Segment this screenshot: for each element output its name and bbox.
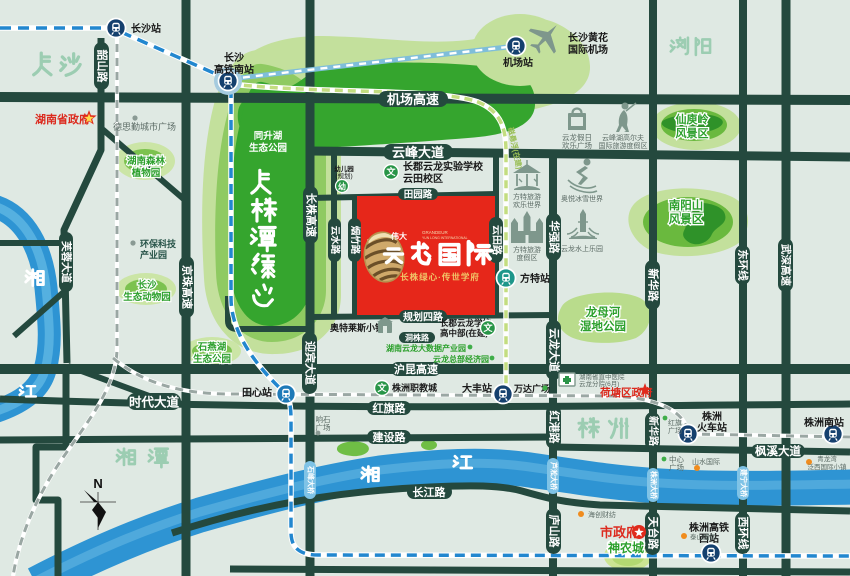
svg-text:广场: 广场 [668,426,682,435]
svg-text:新华路: 新华路 [647,269,661,303]
svg-text:长沙站: 长沙站 [131,22,161,35]
svg-text:石峰大桥: 石峰大桥 [307,465,316,495]
svg-text:泛西国际小镇: 泛西国际小镇 [808,462,848,471]
svg-text:GRANDEUR: GRANDEUR [422,230,449,235]
svg-text:广场: 广场 [316,422,331,432]
svg-text:大丰站: 大丰站 [462,382,492,395]
svg-text:湖南省政府: 湖南省政府 [35,112,90,126]
svg-text:青龙湾: 青龙湾 [817,454,837,463]
svg-text:山水国际: 山水国际 [692,457,720,466]
svg-text:长株绿心·传世学府: 长株绿心·传世学府 [400,272,480,282]
svg-text:枫溪大道: 枫溪大道 [755,444,801,458]
svg-text:度假区: 度假区 [517,253,538,262]
svg-text:国际旅游度假区: 国际旅游度假区 [599,141,648,150]
svg-text:云田校区: 云田校区 [403,172,443,185]
svg-text:机场高速: 机场高速 [387,92,439,107]
svg-text:红港路: 红港路 [548,411,562,445]
svg-text:韶山路: 韶山路 [96,50,110,84]
svg-text:长沙黄花: 长沙黄花 [568,31,608,44]
svg-text:建设路: 建设路 [373,430,407,444]
svg-text:京珠高速: 京珠高速 [181,265,195,309]
svg-text:芦淞大桥: 芦淞大桥 [550,462,559,491]
svg-text:云龙分院(6月): 云龙分院(6月) [579,379,619,388]
svg-text:迎宾大道: 迎宾大道 [304,341,318,385]
svg-text:机场站: 机场站 [503,56,533,69]
svg-text:风景区: 风景区 [669,212,704,226]
svg-text:植物园: 植物园 [131,167,161,179]
svg-text:天台路: 天台路 [647,517,661,551]
svg-text:云龙总部经济园: 云龙总部经济园 [433,354,489,364]
svg-text:西环线: 西环线 [737,517,751,550]
svg-text:株洲南站: 株洲南站 [804,416,844,429]
svg-text:风景区: 风景区 [676,126,709,140]
svg-text:长沙: 长沙 [224,51,244,64]
svg-text:新华路: 新华路 [647,416,660,447]
svg-text:广场: 广场 [669,462,684,472]
svg-text:国际机场: 国际机场 [568,43,608,56]
svg-text:泰山国际: 泰山国际 [690,532,717,541]
svg-text:欢乐世界: 欢乐世界 [513,200,541,209]
svg-text:长江路: 长江路 [413,485,447,499]
svg-text:云峰湖高尔夫: 云峰湖高尔夫 [602,133,644,142]
svg-text:田心站: 田心站 [242,386,272,399]
svg-text:株洲高铁: 株洲高铁 [689,521,729,534]
svg-text:长沙: 长沙 [137,279,157,291]
svg-text:生态公园: 生态公园 [193,353,231,365]
svg-text:云龙大道: 云龙大道 [548,328,562,372]
svg-text:高铁南站: 高铁南站 [214,63,254,76]
svg-text:龙母河: 龙母河 [585,305,621,319]
svg-text:田园路: 田园路 [404,189,433,201]
svg-text:华强路: 华强路 [548,221,562,255]
svg-text:方特旅游: 方特旅游 [513,192,541,201]
svg-text:欢乐广场: 欢乐广场 [562,140,592,150]
svg-text:仙庾岭: 仙庾岭 [676,112,709,126]
svg-text:长郡云龙实验学校: 长郡云龙实验学校 [403,160,484,173]
svg-text:沪昆高速: 沪昆高速 [394,362,438,376]
svg-text:N: N [93,476,102,491]
svg-text:奥悦冰雪世界: 奥悦冰雪世界 [561,194,603,203]
svg-text:海创财纺: 海创财纺 [588,510,616,519]
svg-text:芙蓉大道: 芙蓉大道 [60,240,73,283]
svg-text:德思勤城市广场: 德思勤城市广场 [113,121,176,132]
svg-text:洞株路: 洞株路 [405,333,430,343]
svg-text:红旗: 红旗 [668,418,682,427]
svg-text:(规划): (规划) [335,171,352,180]
svg-text:云水路: 云水路 [329,226,341,255]
svg-text:方特旅游: 方特旅游 [513,245,541,254]
svg-text:烟竹路: 烟竹路 [349,226,361,255]
svg-text:同升湖: 同升湖 [254,130,283,142]
svg-text:生态动物园: 生态动物园 [123,291,171,303]
svg-text:幼: 幼 [338,182,346,192]
svg-text:建宁大桥: 建宁大桥 [740,469,749,498]
svg-text:湖南云龙大数据产业园: 湖南云龙大数据产业园 [386,343,466,353]
svg-text:YUN LONG INTERNATIONAL: YUN LONG INTERNATIONAL [422,236,468,240]
svg-text:火车站: 火车站 [697,421,727,434]
svg-text:方特站: 方特站 [520,272,550,285]
svg-text:庐山路: 庐山路 [548,515,562,549]
svg-text:神农城: 神农城 [608,540,644,555]
svg-text:株洲: 株洲 [702,410,722,423]
svg-text:云龙水上乐园: 云龙水上乐园 [561,244,603,253]
svg-text:环保科技: 环保科技 [140,238,177,249]
svg-text:湖南森林: 湖南森林 [127,155,166,167]
svg-text:东环线: 东环线 [737,249,750,281]
svg-text:时代大道: 时代大道 [129,395,180,410]
svg-text:湖南省直中医院: 湖南省直中医院 [579,372,625,381]
svg-text:伟大: 伟大 [391,231,407,241]
svg-text:株洲大桥: 株洲大桥 [650,471,659,500]
svg-text:红旗路: 红旗路 [373,401,407,415]
svg-text:石燕湖: 石燕湖 [197,341,227,353]
svg-text:幼儿园: 幼儿园 [334,164,354,173]
svg-text:奥特莱斯小镇: 奥特莱斯小镇 [329,322,384,333]
svg-text:株洲职教城: 株洲职教城 [392,382,437,393]
svg-text:规划四路: 规划四路 [403,311,444,324]
svg-text:生态公园: 生态公园 [249,142,287,154]
svg-text:南阳山: 南阳山 [669,198,704,212]
svg-text:云峰大道: 云峰大道 [392,145,444,160]
svg-text:武深高速: 武深高速 [780,244,793,286]
svg-text:湿地公园: 湿地公园 [580,319,626,333]
svg-text:长株高速: 长株高速 [305,193,319,237]
svg-text:产业园: 产业园 [140,249,167,260]
